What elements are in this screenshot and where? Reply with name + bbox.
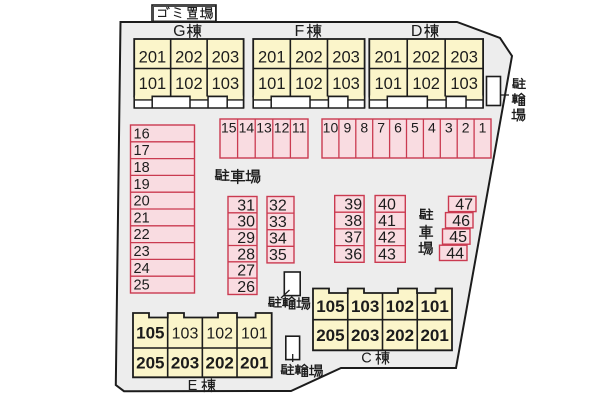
svg-text:45: 45 — [449, 229, 467, 246]
svg-text:3: 3 — [445, 120, 453, 136]
svg-text:37: 37 — [344, 230, 362, 247]
svg-text:201: 201 — [375, 49, 403, 67]
svg-text:C: C — [361, 351, 371, 367]
svg-text:103: 103 — [332, 75, 360, 93]
svg-text:41: 41 — [378, 213, 396, 230]
svg-text:46: 46 — [452, 213, 470, 230]
svg-text:103: 103 — [351, 297, 379, 316]
svg-text:36: 36 — [344, 246, 362, 263]
svg-text:8: 8 — [360, 120, 368, 136]
svg-text:33: 33 — [269, 214, 287, 231]
svg-text:17: 17 — [134, 143, 150, 159]
svg-text:32: 32 — [269, 197, 287, 214]
svg-text:28: 28 — [237, 246, 255, 263]
svg-text:23: 23 — [134, 244, 150, 260]
svg-text:105: 105 — [316, 297, 344, 316]
svg-text:24: 24 — [134, 261, 150, 277]
svg-text:D: D — [411, 23, 423, 40]
svg-text:6: 6 — [394, 120, 402, 136]
svg-text:14: 14 — [239, 120, 255, 136]
svg-text:47: 47 — [455, 197, 473, 214]
svg-text:30: 30 — [237, 214, 255, 231]
svg-text:205: 205 — [316, 326, 344, 345]
svg-text:19: 19 — [134, 177, 150, 193]
svg-text:12: 12 — [274, 120, 290, 136]
svg-text:201: 201 — [258, 49, 286, 67]
svg-text:40: 40 — [378, 196, 396, 213]
svg-text:101: 101 — [375, 75, 403, 93]
svg-text:203: 203 — [332, 49, 360, 67]
svg-text:10: 10 — [323, 120, 339, 136]
svg-text:22: 22 — [134, 227, 150, 243]
svg-text:20: 20 — [134, 194, 150, 210]
svg-text:15: 15 — [221, 120, 237, 136]
svg-text:F: F — [295, 23, 305, 40]
svg-text:103: 103 — [212, 75, 240, 93]
svg-text:42: 42 — [378, 230, 396, 247]
svg-text:102: 102 — [175, 75, 203, 93]
svg-text:1: 1 — [479, 120, 487, 136]
svg-text:44: 44 — [446, 245, 464, 262]
svg-text:201: 201 — [240, 353, 268, 372]
svg-text:202: 202 — [295, 49, 323, 67]
svg-text:101: 101 — [420, 297, 448, 316]
svg-text:105: 105 — [136, 324, 164, 343]
svg-text:103: 103 — [450, 75, 478, 93]
svg-text:E: E — [188, 378, 198, 394]
svg-text:35: 35 — [269, 247, 287, 264]
svg-text:201: 201 — [139, 49, 167, 67]
svg-text:31: 31 — [237, 197, 255, 214]
svg-text:13: 13 — [256, 120, 272, 136]
svg-text:34: 34 — [269, 231, 287, 248]
svg-text:21: 21 — [134, 210, 150, 226]
svg-text:39: 39 — [344, 196, 362, 213]
svg-text:103: 103 — [172, 326, 199, 343]
svg-text:16: 16 — [134, 126, 150, 142]
svg-text:201: 201 — [420, 326, 448, 345]
svg-text:102: 102 — [206, 326, 233, 343]
svg-text:203: 203 — [351, 326, 379, 345]
svg-text:205: 205 — [136, 353, 164, 372]
svg-text:202: 202 — [386, 326, 414, 345]
svg-text:G: G — [173, 23, 185, 40]
svg-text:102: 102 — [412, 75, 440, 93]
svg-text:5: 5 — [411, 120, 419, 136]
svg-text:4: 4 — [428, 120, 436, 136]
svg-text:203: 203 — [450, 49, 478, 67]
svg-text:7: 7 — [377, 120, 385, 136]
svg-text:25: 25 — [134, 278, 150, 294]
svg-text:38: 38 — [344, 213, 362, 230]
svg-text:101: 101 — [241, 326, 268, 343]
svg-text:18: 18 — [134, 160, 150, 176]
svg-text:102: 102 — [386, 297, 414, 316]
svg-text:202: 202 — [206, 353, 234, 372]
svg-text:27: 27 — [237, 263, 255, 280]
svg-text:11: 11 — [292, 120, 307, 136]
svg-text:43: 43 — [378, 246, 396, 263]
svg-text:202: 202 — [175, 49, 203, 67]
svg-text:2: 2 — [462, 120, 470, 136]
svg-text:203: 203 — [212, 49, 240, 67]
svg-text:202: 202 — [412, 49, 440, 67]
svg-text:101: 101 — [139, 75, 167, 93]
svg-text:203: 203 — [171, 353, 199, 372]
svg-text:26: 26 — [237, 279, 255, 296]
svg-text:9: 9 — [343, 120, 351, 136]
svg-text:102: 102 — [295, 75, 323, 93]
svg-text:101: 101 — [258, 75, 286, 93]
svg-text:29: 29 — [237, 230, 255, 247]
